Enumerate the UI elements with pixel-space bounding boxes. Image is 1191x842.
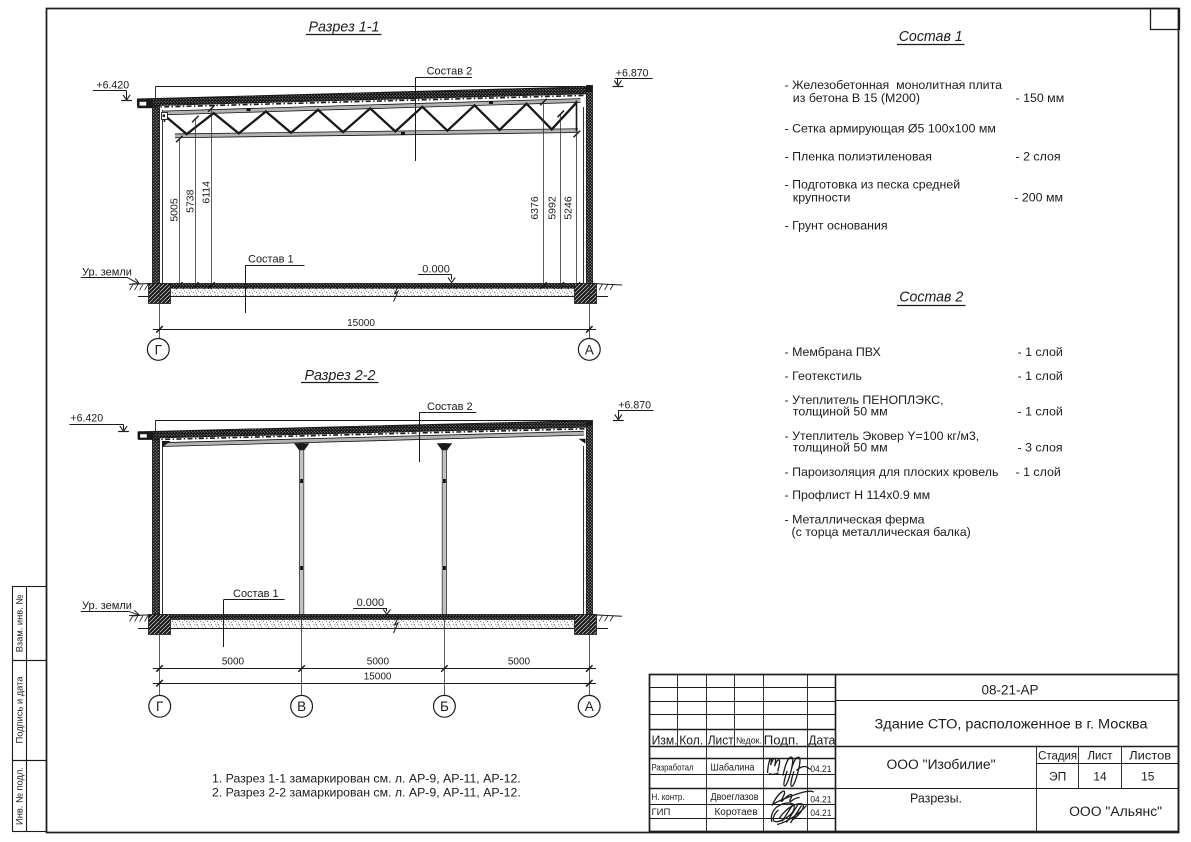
svg-text:ООО "Альянс": ООО "Альянс" (1069, 804, 1162, 819)
svg-text:Разрез 1-1: Разрез 1-1 (309, 20, 380, 36)
svg-text:- Сетка армирующая Ø5 100х100: - Сетка армирующая Ø5 100х100 мм (785, 122, 996, 136)
svg-text:Листов: Листов (1129, 750, 1171, 762)
svg-text:- 3 слоя: - 3 слоя (1018, 441, 1063, 455)
svg-text:- 1 слой: - 1 слой (1018, 405, 1063, 419)
svg-text:Разрез 2-2: Разрез 2-2 (305, 368, 376, 384)
svg-text:ГИП: ГИП (652, 807, 671, 818)
svg-text:04.21: 04.21 (810, 808, 831, 819)
svg-text:15000: 15000 (364, 672, 392, 683)
svg-text:Разрезы.: Разрезы. (910, 791, 962, 806)
svg-text:5000: 5000 (367, 656, 390, 667)
svg-text:(с торца металлическая балка): (с торца металлическая балка) (792, 525, 971, 539)
svg-text:- 1 слой: - 1 слой (1016, 465, 1061, 479)
svg-text:- 150 мм: - 150 мм (1016, 91, 1065, 105)
svg-text:- Мембрана ПВХ: - Мембрана ПВХ (785, 345, 881, 359)
svg-text:- 2 слоя: - 2 слоя (1016, 149, 1061, 163)
svg-text:Подпись и дата: Подпись и дата (15, 676, 25, 744)
svg-text:Б: Б (440, 699, 449, 714)
svg-text:- Профлист Н 114х0.9 мм: - Профлист Н 114х0.9 мм (785, 488, 931, 502)
svg-text:04.21: 04.21 (810, 764, 831, 775)
svg-text:Лист: Лист (1088, 750, 1114, 762)
svg-text:Ур. земли: Ур. земли (82, 600, 132, 612)
svg-text:15: 15 (1141, 770, 1155, 784)
svg-text:крупности: крупности (793, 191, 851, 205)
svg-text:Г: Г (155, 342, 163, 357)
svg-text:Взам. инв. №: Взам. инв. № (15, 595, 25, 653)
svg-text:Состав 2: Состав 2 (427, 66, 473, 78)
svg-text:0.000: 0.000 (422, 263, 450, 275)
svg-text:толщиной 50 мм: толщиной 50 мм (793, 441, 888, 455)
svg-text:Состав 2: Состав 2 (899, 290, 963, 306)
svg-text:Состав 2: Состав 2 (427, 401, 473, 413)
svg-text:04.21: 04.21 (810, 794, 831, 805)
svg-text:- Пароизоляция для плоских кро: - Пароизоляция для плоских кровель (785, 465, 999, 479)
svg-text:Кол.: Кол. (679, 733, 703, 748)
svg-text:5005: 5005 (168, 198, 180, 222)
svg-text:5000: 5000 (508, 656, 531, 667)
svg-text:6376: 6376 (529, 196, 541, 220)
svg-text:0.000: 0.000 (357, 597, 385, 609)
svg-text:- Геотекстиль: - Геотекстиль (785, 369, 862, 383)
svg-text:Ур. земли: Ур. земли (82, 267, 132, 279)
svg-text:Состав 1: Состав 1 (233, 588, 279, 600)
svg-text:- Грунт основания: - Грунт основания (785, 218, 888, 232)
svg-text:- Подготовка из песка средней: - Подготовка из песка средней (785, 177, 961, 191)
svg-text:+6.420: +6.420 (96, 80, 129, 92)
svg-text:Г: Г (156, 699, 164, 714)
svg-text:Коротаев: Коротаев (715, 807, 758, 818)
svg-text:ЭП: ЭП (1049, 770, 1066, 784)
svg-text:Разработал: Разработал (652, 763, 694, 773)
svg-text:08-21-АР: 08-21-АР (981, 682, 1038, 697)
svg-text:Дата: Дата (808, 733, 836, 748)
svg-text:14: 14 (1093, 770, 1107, 784)
svg-text:- 1 слой: - 1 слой (1018, 345, 1063, 359)
svg-text:ООО "Изобилие": ООО "Изобилие" (887, 757, 996, 772)
svg-text:из бетона В 15 (М200): из бетона В 15 (М200) (793, 91, 920, 105)
svg-text:А: А (585, 342, 594, 357)
svg-text:- 200 мм: - 200 мм (1014, 191, 1063, 205)
svg-text:+6.870: +6.870 (618, 399, 651, 411)
svg-text:Подп.: Подп. (764, 733, 799, 748)
svg-text:В: В (297, 699, 306, 714)
svg-text:Здание СТО, расположенное в г.: Здание СТО, расположенное в г. Москва (875, 716, 1149, 731)
svg-text:Стадия: Стадия (1038, 750, 1077, 762)
svg-text:6114: 6114 (200, 181, 212, 204)
svg-text:Состав 1: Состав 1 (248, 254, 294, 266)
svg-text:2. Разрез 2-2 замаркирован см.: 2. Разрез 2-2 замаркирован см. л. АР-9, … (212, 786, 521, 800)
svg-text:- Пленка полиэтиленовая: - Пленка полиэтиленовая (785, 149, 933, 163)
svg-text:Лист: Лист (708, 733, 734, 748)
svg-text:5992: 5992 (547, 196, 559, 220)
svg-text:Н. контр.: Н. контр. (652, 792, 685, 803)
svg-text:5246: 5246 (563, 196, 575, 220)
svg-text:№док.: №док. (736, 736, 762, 746)
svg-text:Состав 1: Состав 1 (899, 29, 963, 45)
svg-text:Двоеглазов: Двоеглазов (711, 792, 759, 803)
svg-text:Инв. № подл.: Инв. № подл. (15, 767, 25, 825)
svg-text:А: А (585, 699, 594, 714)
svg-text:- 1 слой: - 1 слой (1018, 369, 1063, 383)
svg-text:Изм.: Изм. (652, 733, 678, 748)
svg-text:+6.870: +6.870 (616, 68, 649, 80)
svg-text:15000: 15000 (347, 318, 375, 329)
svg-text:5000: 5000 (222, 656, 245, 667)
svg-text:5738: 5738 (184, 189, 196, 213)
svg-text:1. Разрез 1-1 замаркирован см.: 1. Разрез 1-1 замаркирован см. л. АР-9, … (212, 772, 521, 786)
svg-text:Шабалина: Шабалина (711, 762, 755, 774)
svg-text:+6.420: +6.420 (70, 413, 103, 425)
svg-text:толщиной 50 мм: толщиной 50 мм (793, 405, 888, 419)
